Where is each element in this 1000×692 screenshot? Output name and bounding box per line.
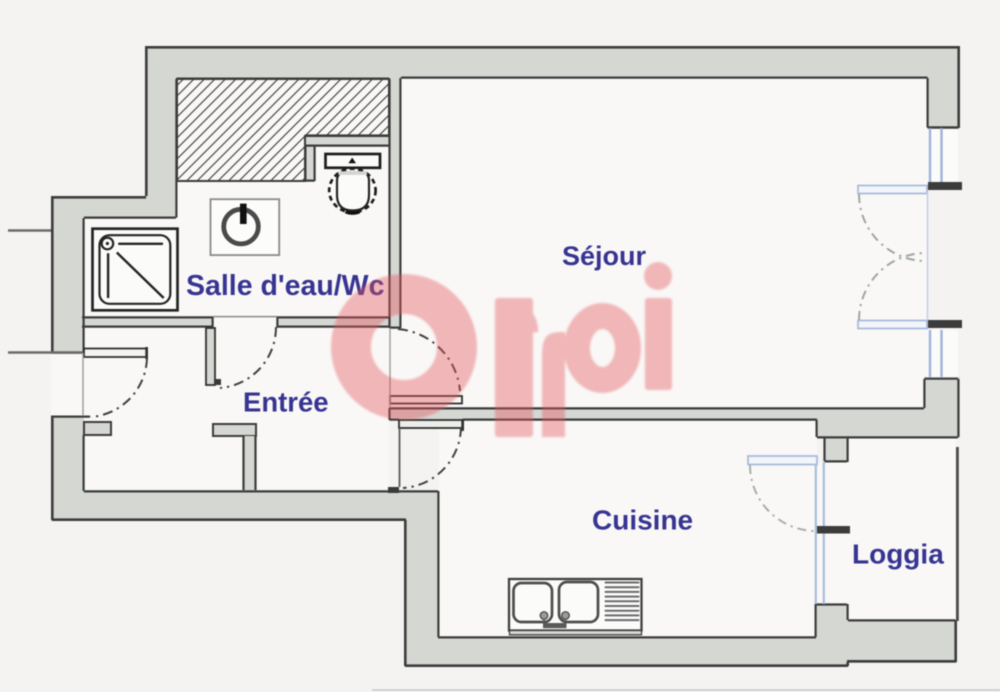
svg-text:Loggia: Loggia [852, 539, 944, 570]
svg-text:Entrée: Entrée [243, 387, 329, 418]
svg-text:Séjour: Séjour [562, 241, 647, 271]
svg-text:Cuisine: Cuisine [592, 505, 693, 536]
